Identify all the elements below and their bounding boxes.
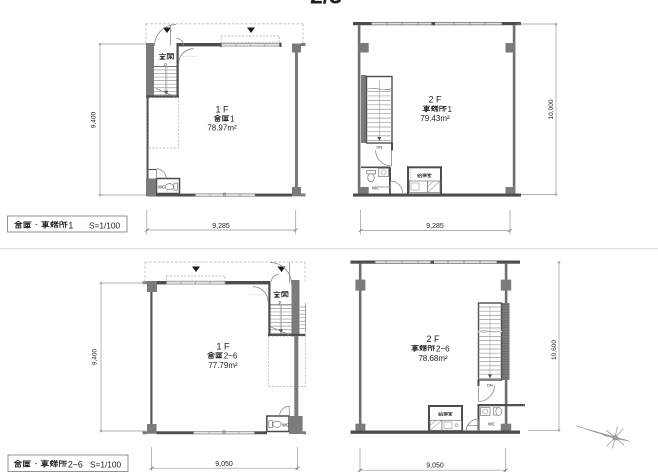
svg-text:10,000: 10,000 [548, 99, 555, 119]
svg-text:DN: DN [487, 383, 493, 388]
svg-text:9,400: 9,400 [91, 111, 98, 128]
svg-text:S=1/100: S=1/100 [90, 459, 122, 469]
svg-text:10,600: 10,600 [551, 340, 558, 360]
svg-text:9,050: 9,050 [426, 463, 444, 470]
svg-text:77.79m²: 77.79m² [208, 361, 238, 370]
svg-text:WC: WC [488, 422, 495, 427]
svg-text:9,285: 9,285 [426, 223, 444, 230]
svg-text:2~6: 2~6 [436, 345, 450, 354]
svg-text:WC: WC [282, 423, 289, 428]
svg-text:2~6: 2~6 [224, 352, 238, 361]
svg-text:2~6: 2~6 [68, 459, 83, 469]
svg-text:WC: WC [372, 186, 379, 191]
svg-text:1: 1 [68, 220, 73, 230]
svg-text:1: 1 [230, 115, 235, 124]
svg-text:9,400: 9,400 [92, 348, 99, 365]
svg-text:1 F: 1 F [216, 105, 230, 115]
svg-text:9,285: 9,285 [212, 223, 230, 230]
svg-text:9,050: 9,050 [215, 461, 233, 468]
svg-text:2 F: 2 F [429, 95, 443, 105]
svg-text:79.43m²: 79.43m² [420, 114, 450, 123]
svg-text:1 F: 1 F [217, 342, 231, 352]
svg-text:S=1/100: S=1/100 [89, 220, 121, 230]
svg-text:2/3: 2/3 [310, 0, 342, 9]
svg-text:2 F: 2 F [427, 334, 441, 344]
svg-text:WC: WC [158, 185, 165, 190]
svg-text:1: 1 [448, 105, 453, 114]
svg-text:78.68m²: 78.68m² [418, 354, 448, 363]
svg-text:DN: DN [377, 145, 383, 150]
svg-text:78.97m²: 78.97m² [207, 124, 237, 133]
